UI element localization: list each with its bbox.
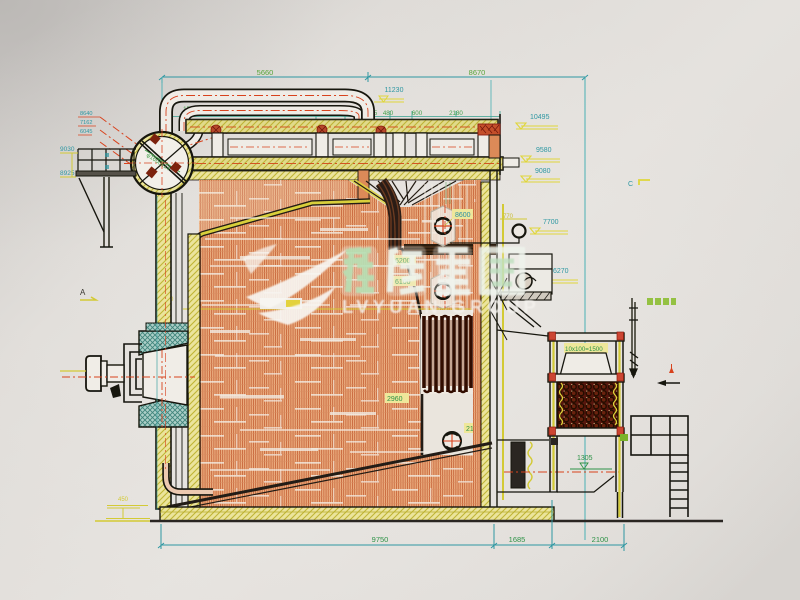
svg-text:9580: 9580: [536, 147, 552, 154]
svg-text:8600: 8600: [455, 212, 471, 219]
svg-text:2100: 2100: [592, 535, 609, 544]
svg-text:2960: 2960: [387, 396, 403, 403]
svg-text:7700: 7700: [543, 219, 559, 226]
svg-text:1685: 1685: [509, 535, 526, 544]
svg-text:10x100=1500: 10x100=1500: [565, 346, 603, 353]
svg-text:6045: 6045: [80, 129, 92, 135]
svg-text:9750: 9750: [372, 535, 389, 544]
svg-text:C: C: [628, 181, 633, 188]
svg-text:8670: 8670: [469, 68, 486, 77]
svg-text:7162: 7162: [80, 120, 92, 126]
svg-text:6270: 6270: [553, 268, 569, 275]
svg-text:2180: 2180: [449, 110, 463, 117]
svg-text:LVYUAN GROUP: LVYUAN GROUP: [342, 296, 540, 317]
svg-text:9030: 9030: [60, 146, 75, 153]
svg-text:600: 600: [412, 110, 423, 117]
svg-text:9080: 9080: [535, 168, 551, 175]
svg-text:480: 480: [383, 110, 394, 117]
svg-text:A: A: [80, 288, 86, 297]
svg-text:1305: 1305: [577, 455, 593, 462]
svg-text:10495: 10495: [530, 114, 550, 121]
svg-text:8925: 8925: [60, 170, 75, 177]
svg-text:5660: 5660: [257, 68, 274, 77]
svg-text:11230: 11230: [385, 87, 404, 94]
svg-text:450: 450: [118, 497, 129, 503]
svg-text:8640: 8640: [80, 111, 92, 117]
